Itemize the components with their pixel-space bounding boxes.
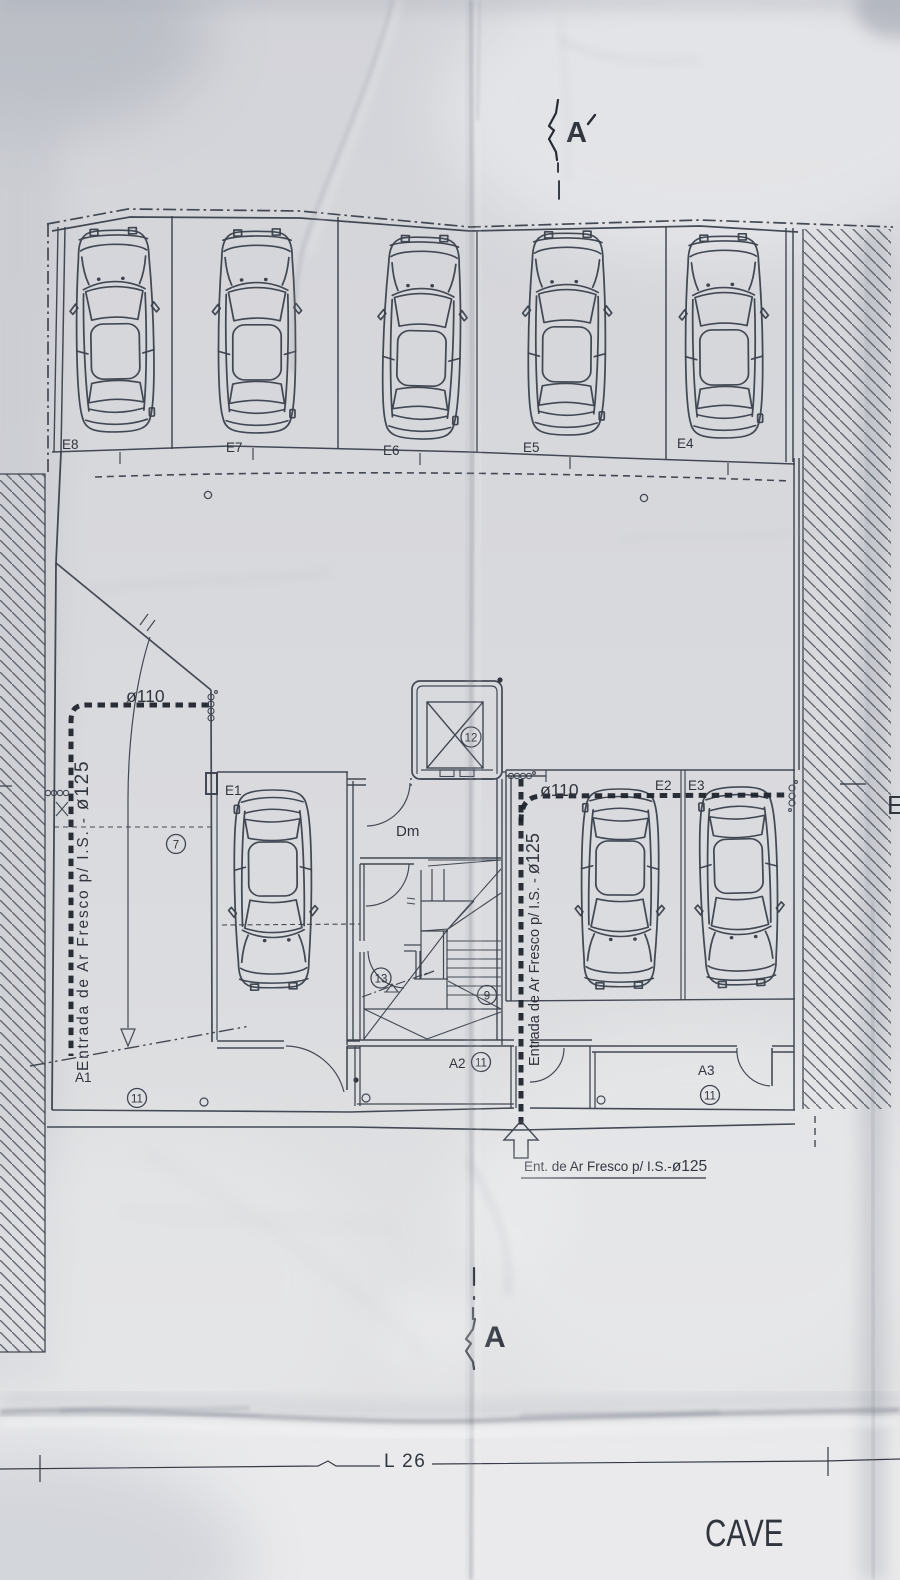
svg-text:Entrada de Ar Fresco p/ I.S. -: Entrada de Ar Fresco p/ I.S. - ø125 <box>72 760 93 1071</box>
svg-text:E2: E2 <box>655 778 672 793</box>
svg-text:A1: A1 <box>75 1070 92 1085</box>
svg-text:ø110: ø110 <box>540 780 579 800</box>
svg-text:7: 7 <box>173 840 179 852</box>
svg-text:CAVE: CAVE <box>705 1513 783 1555</box>
svg-text:L 26: L 26 <box>384 1451 426 1472</box>
svg-text:13: 13 <box>375 974 388 986</box>
svg-text:11: 11 <box>131 1094 143 1106</box>
svg-text:E: E <box>887 790 900 820</box>
svg-text:E4: E4 <box>677 436 694 451</box>
svg-text:E6: E6 <box>383 443 400 458</box>
svg-text:E7: E7 <box>226 440 243 455</box>
svg-text:E5: E5 <box>523 440 540 455</box>
svg-text:11: 11 <box>704 1091 716 1103</box>
svg-text:ø110: ø110 <box>126 686 165 706</box>
svg-text:9: 9 <box>484 991 490 1003</box>
svg-text:E3: E3 <box>688 778 705 793</box>
svg-text:Dm: Dm <box>396 823 419 840</box>
svg-text:A: A <box>484 1321 506 1354</box>
svg-text:A3: A3 <box>698 1063 715 1078</box>
svg-text:E8: E8 <box>62 437 79 452</box>
svg-text:E1: E1 <box>225 783 242 798</box>
